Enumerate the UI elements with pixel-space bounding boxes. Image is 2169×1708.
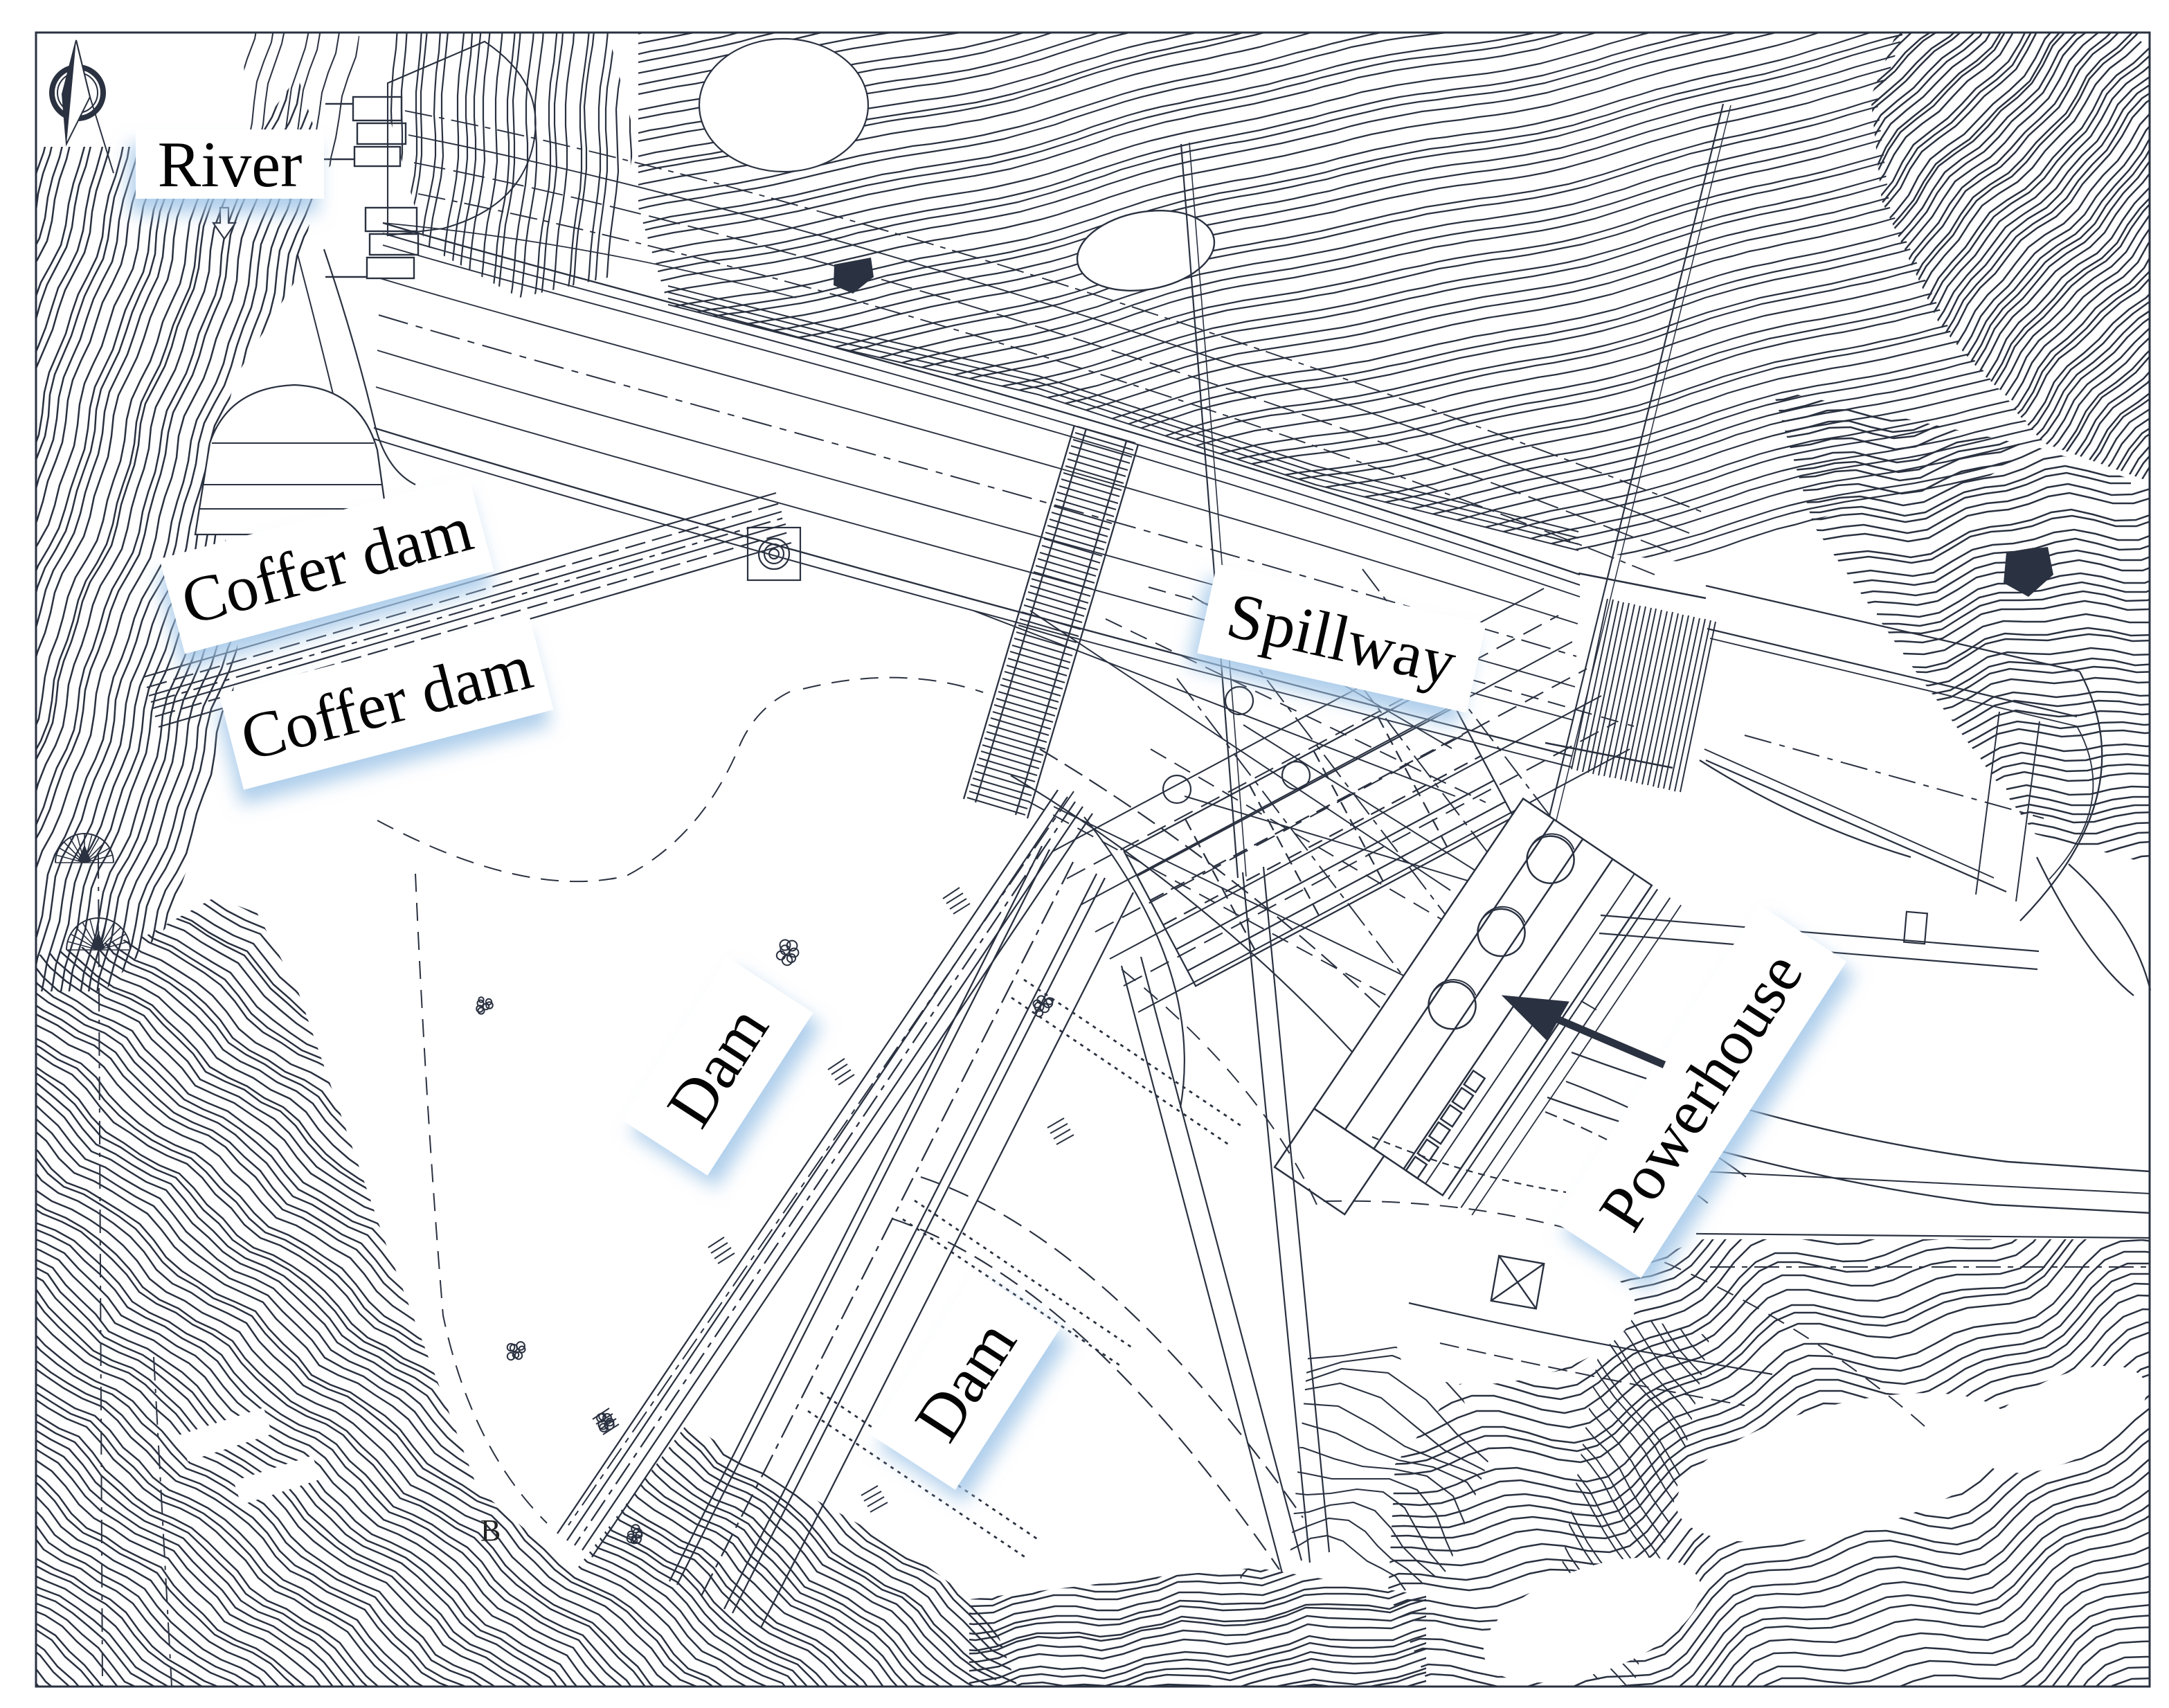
svg-text:B: B [480, 1513, 501, 1547]
svg-text:River: River [158, 129, 303, 201]
